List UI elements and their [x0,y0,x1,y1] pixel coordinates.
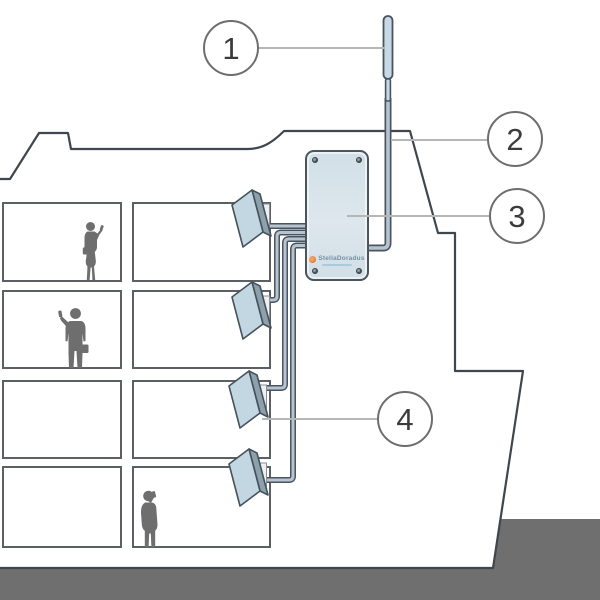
callout-number: 2 [506,124,523,155]
outdoor-antenna [384,16,393,101]
leader-line-4 [262,418,378,420]
screw-icon [312,268,318,274]
screw-icon [356,157,362,163]
leader-line-2 [391,139,488,141]
brand-logo: StellaDoradus [307,256,367,266]
cabin-room [3,381,121,458]
cabin-grid [3,203,270,547]
callout-number: 1 [222,33,239,64]
diagram-canvas [0,0,600,600]
screw-icon [356,268,362,274]
brand-logo-icon [309,256,316,263]
leader-line-3 [347,215,490,217]
callout-number: 4 [396,404,413,435]
cabin-room [3,203,121,281]
cabin-room [3,467,121,547]
briefcase [80,345,89,354]
ship-signal-diagram: StellaDoradus 1 2 3 4 [0,0,600,600]
outdoor-antenna-cable [366,98,388,248]
callout-2-coax-cable: 2 [487,111,543,167]
callout-1-outdoor-antenna: 1 [203,20,259,76]
callout-3-repeater-box: 3 [489,188,545,244]
brand-tagline-mark [322,264,352,266]
handbag [83,248,89,255]
leader-line-1 [257,47,385,49]
brand-name: StellaDoradus [318,256,364,263]
callout-4-indoor-antennas: 4 [377,391,433,447]
screw-icon [312,157,318,163]
callout-number: 3 [508,201,525,232]
cabin-room [3,291,121,368]
